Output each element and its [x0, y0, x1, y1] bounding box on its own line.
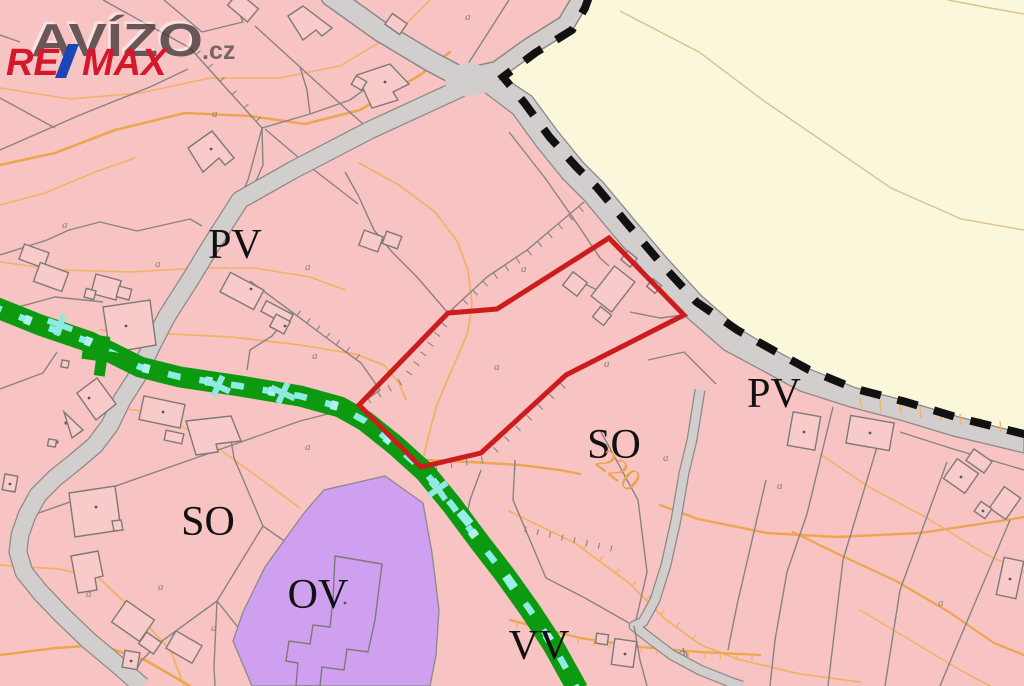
svg-text:a: a	[938, 597, 944, 609]
svg-text:a: a	[494, 361, 500, 373]
svg-text:a: a	[158, 581, 164, 593]
svg-text:OV: OV	[288, 572, 349, 618]
svg-text:VV: VV	[509, 623, 570, 669]
svg-text:RE: RE	[6, 42, 60, 84]
svg-text:SO: SO	[181, 499, 235, 545]
svg-text:a: a	[312, 350, 318, 362]
svg-text:a: a	[155, 258, 161, 270]
svg-text:a: a	[305, 441, 311, 453]
svg-text:a: a	[663, 452, 669, 464]
svg-text:a: a	[465, 11, 471, 23]
svg-text:PV: PV	[747, 371, 801, 417]
svg-text:.cz: .cz	[202, 37, 235, 65]
svg-text:a: a	[305, 261, 311, 273]
svg-text:a: a	[604, 358, 610, 370]
svg-text:a: a	[62, 219, 68, 231]
svg-text:MAX: MAX	[82, 42, 169, 84]
svg-text:a: a	[777, 480, 783, 492]
svg-text:a: a	[211, 622, 217, 634]
svg-text:a: a	[521, 263, 527, 275]
svg-text:a: a	[212, 108, 218, 120]
svg-text:PV: PV	[208, 222, 262, 268]
